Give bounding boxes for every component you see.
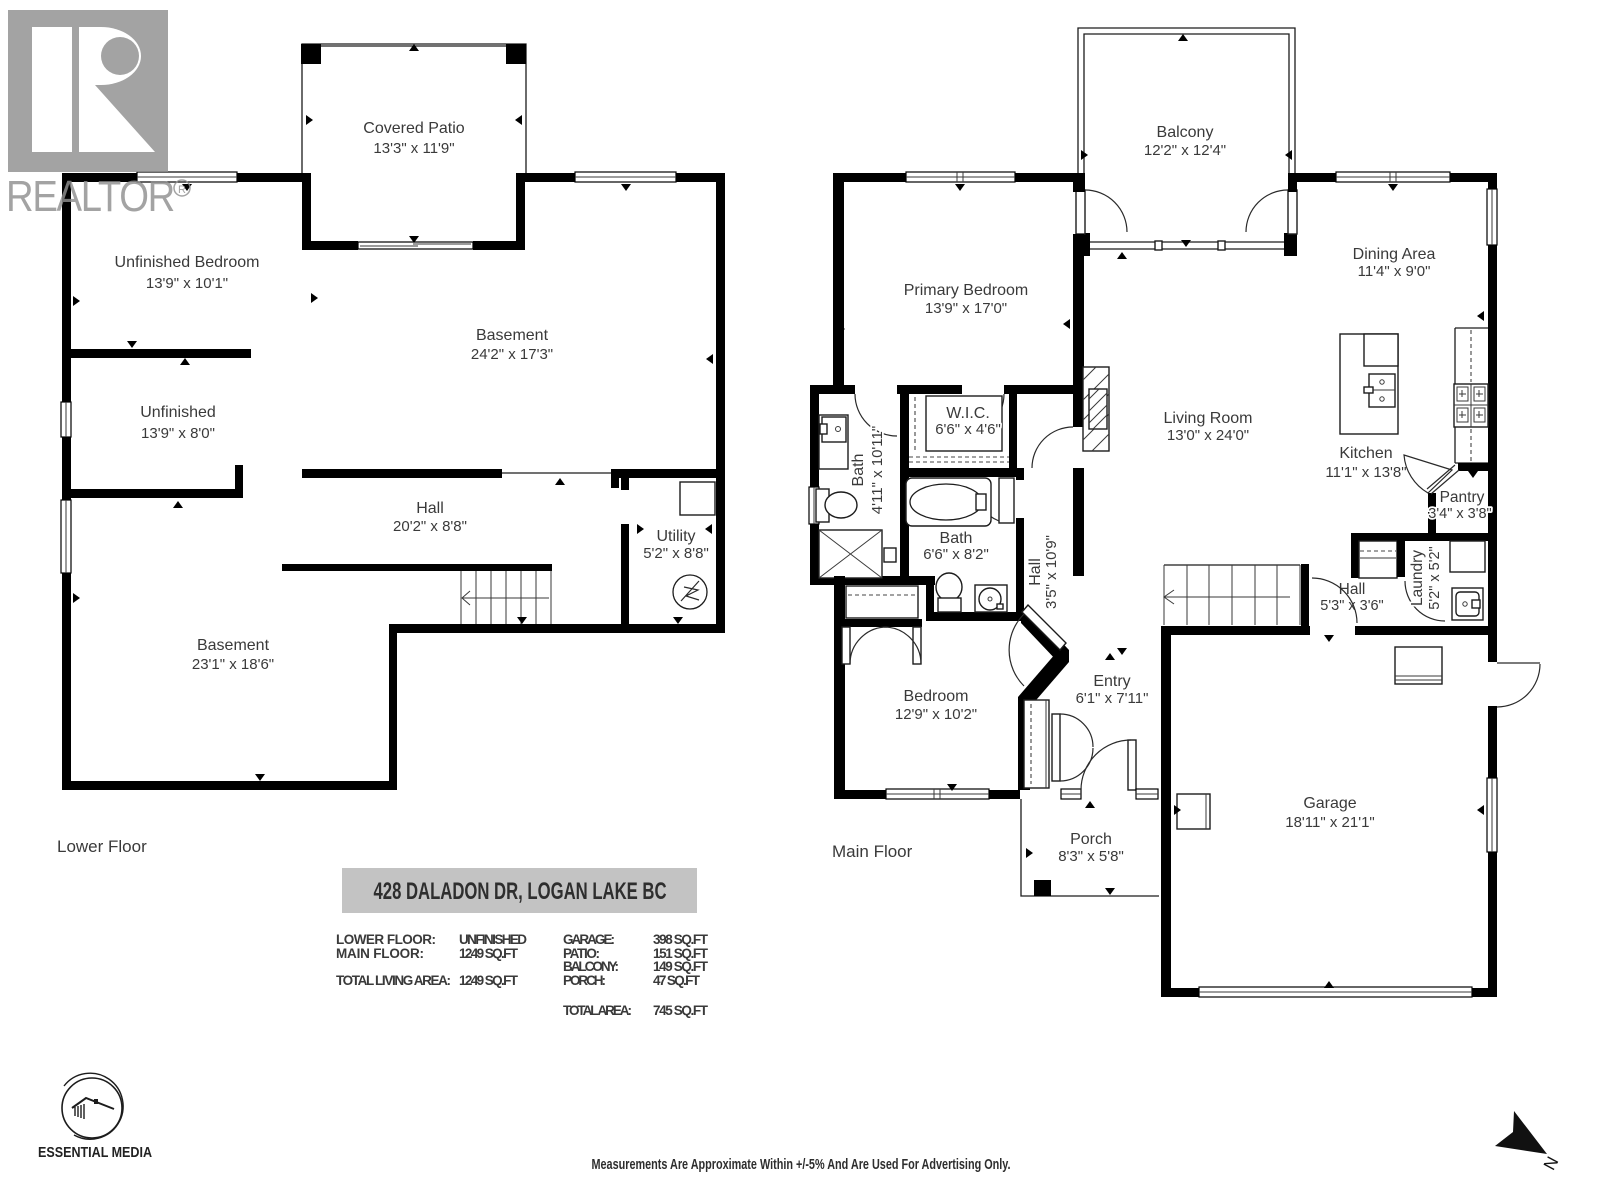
svg-text:12'2" x 12'4": 12'2" x 12'4" <box>1144 142 1226 159</box>
svg-text:BALCONY:: BALCONY: <box>563 959 619 974</box>
svg-text:Garage: Garage <box>1303 795 1356 812</box>
svg-text:GARAGE:: GARAGE: <box>563 932 615 947</box>
svg-text:R: R <box>178 184 186 196</box>
svg-text:11'4" x 9'0": 11'4" x 9'0" <box>1358 263 1431 280</box>
svg-text:12'9" x 10'2": 12'9" x 10'2" <box>895 706 977 723</box>
svg-text:5'2" x 5'2": 5'2" x 5'2" <box>1427 546 1443 609</box>
svg-text:Lower Floor: Lower Floor <box>57 837 147 856</box>
svg-text:Pantry: Pantry <box>1440 489 1485 506</box>
svg-text:11'1" x 13'8": 11'1" x 13'8" <box>1325 464 1406 481</box>
svg-text:23'1" x 18'6": 23'1" x 18'6" <box>192 656 274 673</box>
svg-text:Kitchen: Kitchen <box>1339 445 1392 462</box>
svg-text:Bedroom: Bedroom <box>904 688 969 705</box>
svg-text:Porch: Porch <box>1070 831 1112 848</box>
svg-text:Utility: Utility <box>656 528 695 545</box>
svg-text:5'3" x 3'6": 5'3" x 3'6" <box>1320 598 1383 614</box>
svg-text:Unfinished Bedroom: Unfinished Bedroom <box>115 254 260 271</box>
svg-text:3'4" x 3'8": 3'4" x 3'8" <box>1428 506 1491 522</box>
svg-text:13'9" x 17'0": 13'9" x 17'0" <box>925 300 1007 317</box>
svg-text:4'11" x 10'11": 4'11" x 10'11" <box>869 426 886 514</box>
svg-text:3'5" x 10'9": 3'5" x 10'9" <box>1043 535 1060 609</box>
svg-text:Dining Area: Dining Area <box>1353 246 1436 263</box>
svg-text:398 SQ.FT: 398 SQ.FT <box>653 932 709 947</box>
svg-text:6'1" x 7'11": 6'1" x 7'11" <box>1076 690 1149 707</box>
svg-text:13'9" x 8'0": 13'9" x 8'0" <box>141 425 215 442</box>
svg-text:Covered Patio: Covered Patio <box>363 120 464 137</box>
svg-text:UNFINISHED: UNFINISHED <box>459 932 527 947</box>
svg-text:Hall: Hall <box>1027 558 1044 586</box>
svg-text:TOTAL LIVING AREA:: TOTAL LIVING AREA: <box>336 973 451 988</box>
svg-text:REALTOR: REALTOR <box>6 172 174 221</box>
svg-text:Entry: Entry <box>1093 673 1130 690</box>
svg-text:5'2" x 8'8": 5'2" x 8'8" <box>643 545 709 562</box>
svg-text:13'0" x 24'0": 13'0" x 24'0" <box>1167 427 1249 444</box>
svg-text:Laundry: Laundry <box>1409 550 1426 606</box>
svg-text:1249 SQ.FT: 1249 SQ.FT <box>459 946 519 961</box>
svg-text:Bath: Bath <box>850 454 867 487</box>
svg-text:Measurements Are Approximate W: Measurements Are Approximate Within +/-5… <box>592 1157 1011 1173</box>
svg-text:Living Room: Living Room <box>1164 410 1253 427</box>
svg-text:Hall: Hall <box>416 500 444 517</box>
svg-text:Main Floor: Main Floor <box>832 842 913 861</box>
svg-text:W.I.C.: W.I.C. <box>946 405 990 422</box>
svg-text:Bath: Bath <box>940 530 973 547</box>
svg-text:MAIN FLOOR:: MAIN FLOOR: <box>336 946 424 961</box>
svg-text:Basement: Basement <box>197 637 270 654</box>
svg-text:6'6" x 8'2": 6'6" x 8'2" <box>923 546 989 563</box>
svg-text:745 SQ.FT: 745 SQ.FT <box>653 1003 709 1018</box>
svg-text:LOWER FLOOR:: LOWER FLOOR: <box>336 932 436 947</box>
svg-text:PORCH:: PORCH: <box>563 973 606 988</box>
svg-text:20'2" x 8'8": 20'2" x 8'8" <box>393 518 467 535</box>
svg-text:ESSENTIAL MEDIA: ESSENTIAL MEDIA <box>38 1144 152 1161</box>
svg-text:24'2" x 17'3": 24'2" x 17'3" <box>471 346 553 363</box>
svg-text:47 SQ.FT: 47 SQ.FT <box>653 973 701 988</box>
svg-text:18'11" x 21'1": 18'11" x 21'1" <box>1285 814 1375 831</box>
svg-text:TOTAL AREA:: TOTAL AREA: <box>563 1003 632 1018</box>
svg-text:13'3" x 11'9": 13'3" x 11'9" <box>373 140 454 157</box>
svg-text:Balcony: Balcony <box>1157 124 1214 141</box>
svg-text:149 SQ.FT: 149 SQ.FT <box>653 959 709 974</box>
svg-text:8'3" x 5'8": 8'3" x 5'8" <box>1058 848 1124 865</box>
svg-text:Basement: Basement <box>476 327 549 344</box>
svg-text:428 DALADON DR, LOGAN LAKE BC: 428 DALADON DR, LOGAN LAKE BC <box>374 878 667 905</box>
svg-text:Unfinished: Unfinished <box>140 404 216 421</box>
svg-text:Primary Bedroom: Primary Bedroom <box>904 282 1028 299</box>
svg-text:1249 SQ.FT: 1249 SQ.FT <box>459 973 519 988</box>
svg-text:13'9" x 10'1": 13'9" x 10'1" <box>146 275 228 292</box>
svg-text:6'6" x 4'6": 6'6" x 4'6" <box>935 421 1001 438</box>
